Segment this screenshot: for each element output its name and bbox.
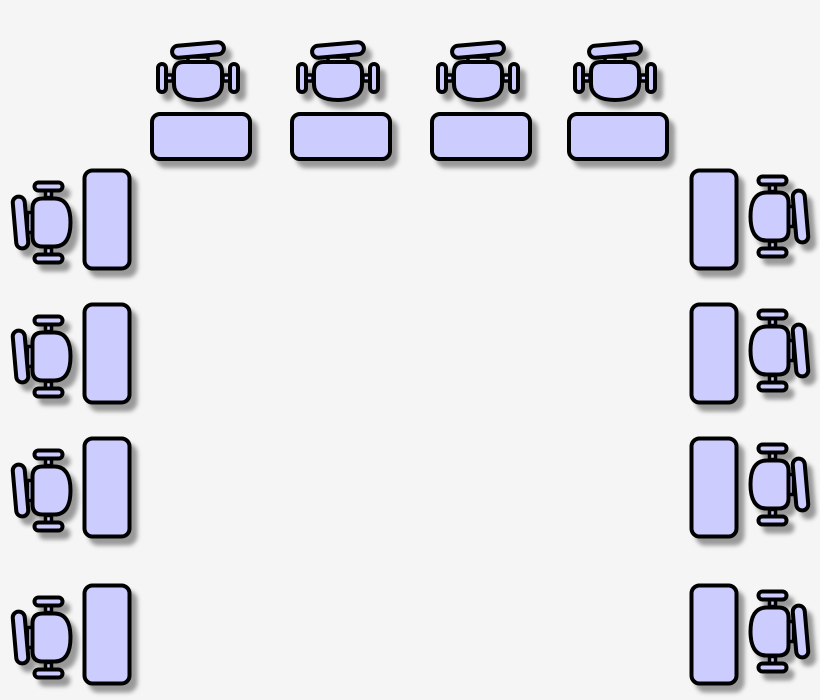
desk-chair-icon [12,302,131,404]
desk-chair-icon [689,302,808,404]
chair-armrest-right [34,182,62,190]
chair [158,42,238,100]
chair-seat [32,613,70,661]
chair-seat [750,326,788,374]
chair-armrest-right [230,64,238,92]
chair-backrest [312,42,365,58]
desk [691,170,736,268]
chair-seat [174,62,222,100]
desk-chair-icon [290,42,392,161]
chair [12,316,70,396]
chair [750,444,808,524]
desk-chair-icon [12,583,131,685]
desk [84,585,129,683]
chair [12,182,70,262]
chair-backrest [792,190,808,243]
desk-chair-icon [689,168,808,270]
chair-backrest [12,464,28,517]
desk-chair-icon [567,42,669,161]
chair-armrest-right [370,64,378,92]
chair-seat [750,607,788,655]
desk [84,170,129,268]
chair-backrest [792,605,808,658]
chair-armrest-left [34,388,62,396]
chair-armrest-left [34,254,62,262]
desk-chair-icon [689,436,808,538]
desk [84,304,129,402]
desk-chair-unit-left-1 [12,168,131,270]
desk-chair-icon [689,583,808,685]
desk-chair-unit-right-2 [689,302,808,404]
chair-armrest-right [758,663,786,671]
desk [432,114,530,159]
chair-armrest-right [758,516,786,524]
chair-armrest-left [758,176,786,184]
chair-seat [454,62,502,100]
desk-chair-unit-top-3 [430,42,532,161]
chair-armrest-right [34,450,62,458]
chair-armrest-left [575,64,583,92]
desk [84,438,129,536]
chair-backrest [792,324,808,377]
desk-chair-unit-left-4 [12,583,131,685]
desk-chair-unit-left-2 [12,302,131,404]
chair-armrest-left [758,444,786,452]
desk [691,304,736,402]
chair-armrest-left [758,310,786,318]
chair-seat [750,192,788,240]
chair-backrest [589,42,642,58]
desk [569,114,667,159]
chair [298,42,378,100]
chair-backrest [172,42,225,58]
chair-backrest [792,458,808,511]
chair-armrest-right [758,382,786,390]
chair-backrest [12,196,28,249]
desk-chair-unit-right-1 [689,168,808,270]
chair-backrest [12,330,28,383]
chair [750,176,808,256]
desk-chair-unit-top-4 [567,42,669,161]
chair-armrest-left [438,64,446,92]
chair-seat [314,62,362,100]
chair-armrest-left [34,522,62,530]
desk [292,114,390,159]
desk-chair-icon [150,42,252,161]
chair [12,450,70,530]
desk-chair-icon [12,436,131,538]
chair-backrest [452,42,505,58]
desk-chair-icon [12,168,131,270]
chair [750,310,808,390]
chair-backrest [12,611,28,664]
chair [750,591,808,671]
chair-armrest-right [34,597,62,605]
desk [152,114,250,159]
desk-chair-icon [430,42,532,161]
chair-armrest-right [647,64,655,92]
chair-armrest-right [510,64,518,92]
chair-armrest-right [758,248,786,256]
chair-armrest-left [34,669,62,677]
chair-seat [32,466,70,514]
chair [12,597,70,677]
chair-armrest-right [34,316,62,324]
desk-chair-unit-left-3 [12,436,131,538]
chair-armrest-left [158,64,166,92]
chair-armrest-left [758,591,786,599]
seating-chart [0,0,820,700]
desk-chair-unit-right-4 [689,583,808,685]
desk [691,438,736,536]
chair [575,42,655,100]
desk-chair-unit-top-1 [150,42,252,161]
chair-seat [32,332,70,380]
desk-chair-unit-top-2 [290,42,392,161]
desk [691,585,736,683]
chair-seat [32,198,70,246]
chair-seat [591,62,639,100]
chair-seat [750,460,788,508]
chair-armrest-left [298,64,306,92]
desk-chair-unit-right-3 [689,436,808,538]
chair [438,42,518,100]
